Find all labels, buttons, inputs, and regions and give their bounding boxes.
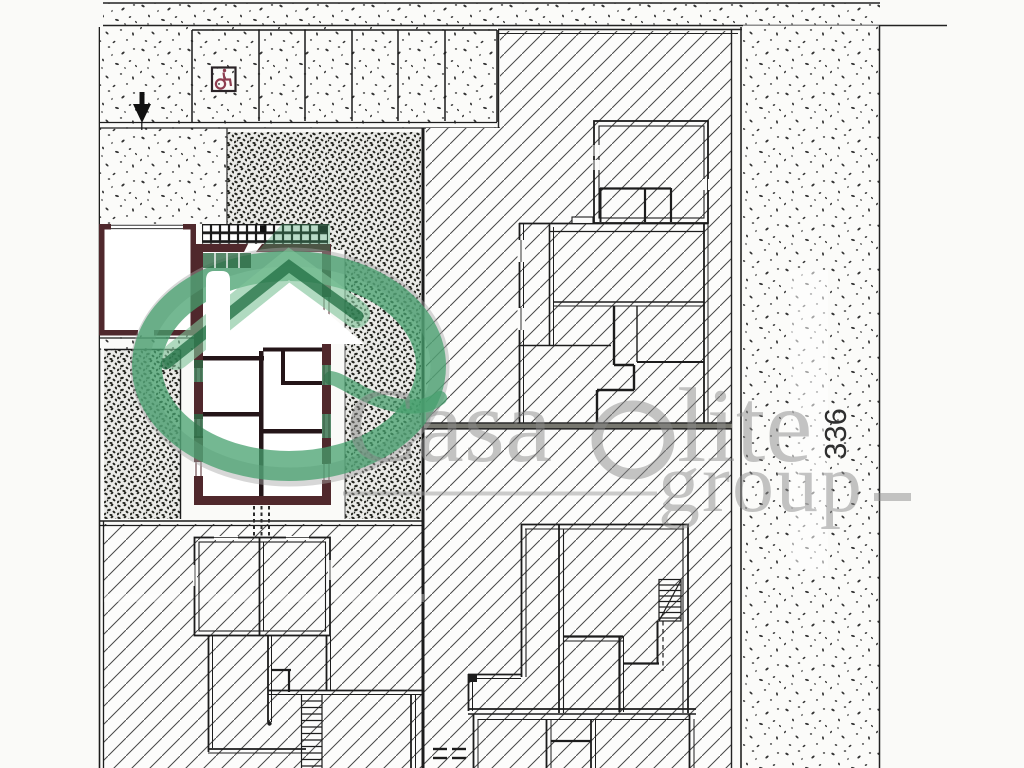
svg-text:Casa: Casa	[346, 367, 552, 484]
svg-text:336: 336	[818, 408, 853, 460]
